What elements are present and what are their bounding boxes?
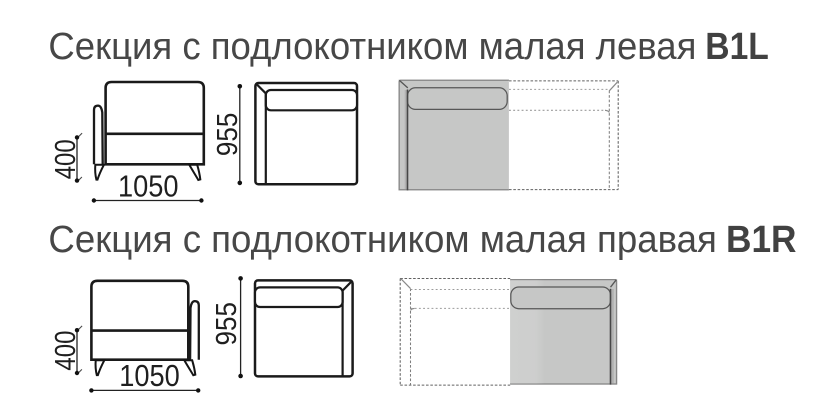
svg-text:955: 955 (212, 113, 244, 157)
svg-text:400: 400 (50, 139, 82, 179)
svg-text:B1R: B1R (726, 219, 797, 261)
svg-text:1050: 1050 (118, 169, 179, 204)
svg-text:955: 955 (211, 302, 243, 346)
svg-text:1050: 1050 (119, 358, 180, 393)
svg-text:400: 400 (50, 331, 82, 371)
svg-text:Секция с подлокотником малая: Секция с подлокотником малая правая (48, 219, 717, 261)
svg-text:Секция с подлокотником малая: Секция с подлокотником малая левая (48, 26, 696, 68)
svg-text:B1L: B1L (705, 26, 769, 68)
